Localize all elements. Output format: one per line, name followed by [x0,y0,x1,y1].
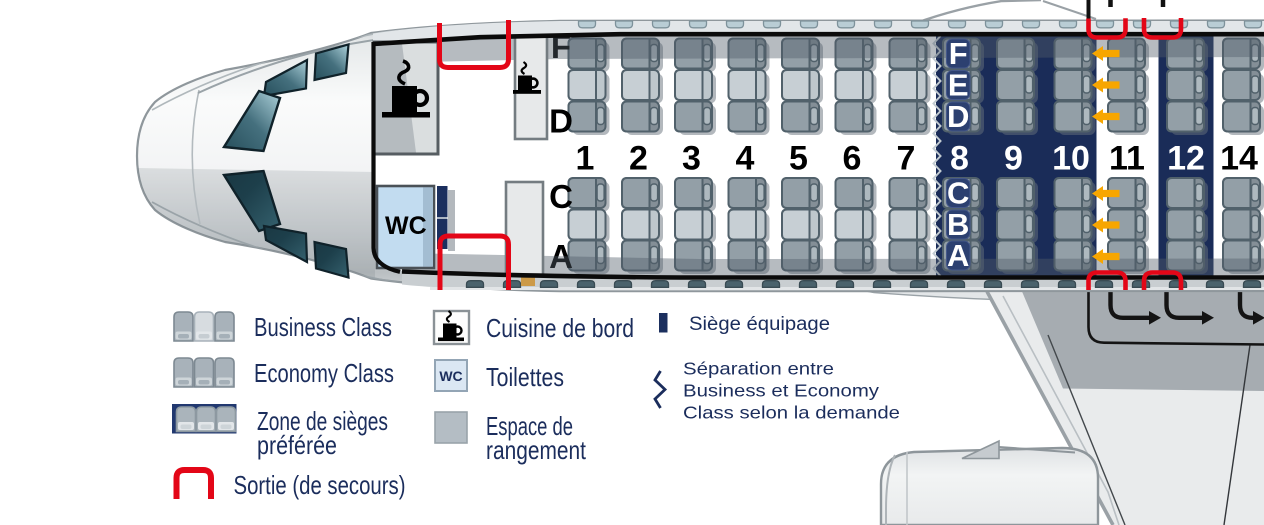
svg-text:4: 4 [736,140,755,178]
svg-text:Séparation entre: Séparation entre [683,359,834,379]
svg-text:WC: WC [385,212,427,240]
svg-text:Business et Economy: Business et Economy [683,381,879,401]
svg-text:préférée: préférée [257,430,337,460]
svg-text:Cuisine de bord: Cuisine de bord [486,313,634,343]
svg-text:F: F [949,36,968,71]
svg-text:Toilettes: Toilettes [486,362,564,392]
svg-text:C: C [549,178,573,215]
svg-text:Class selon la demande: Class selon la demande [683,403,900,423]
svg-text:E: E [948,68,969,103]
svg-text:8: 8 [950,140,969,178]
svg-text:10: 10 [1052,140,1090,178]
svg-text:Siège équipage: Siège équipage [689,314,830,335]
svg-text:6: 6 [843,140,862,178]
svg-text:Economy Class: Economy Class [254,358,394,388]
svg-text:9: 9 [1004,140,1023,178]
svg-text:7: 7 [897,140,916,178]
svg-text:1: 1 [576,140,595,178]
svg-text:Business Class: Business Class [254,312,392,342]
svg-text:D: D [549,103,573,140]
svg-text:11: 11 [1109,140,1145,178]
svg-text:A: A [947,238,969,273]
svg-text:14: 14 [1220,140,1258,178]
svg-text:WC: WC [439,368,462,384]
svg-text:2: 2 [629,140,648,178]
svg-text:C: C [947,176,969,211]
svg-text:5: 5 [789,140,808,178]
svg-text:Sortie (de secours): Sortie (de secours) [234,470,406,500]
svg-text:D: D [947,99,969,134]
svg-text:3: 3 [682,140,701,178]
svg-text:12: 12 [1167,140,1205,178]
svg-text:B: B [947,207,969,242]
svg-text:rangement: rangement [486,435,587,465]
